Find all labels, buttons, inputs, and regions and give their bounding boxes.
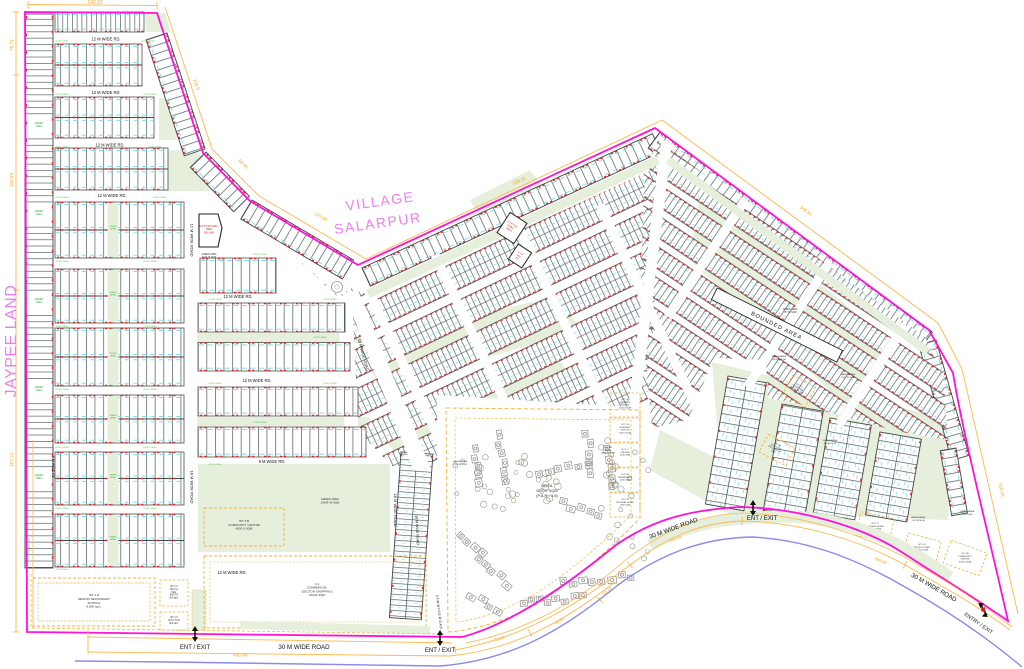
svg-text:30 M WIDE ROAD: 30 M WIDE ROAD (278, 644, 330, 651)
svg-text:9 M WIDE RD.: 9 M WIDE RD. (259, 459, 286, 464)
svg-text:203.89: 203.89 (9, 173, 14, 187)
svg-text:GREEN AREA1411.38 SQM: GREEN AREA1411.38 SQM (911, 516, 926, 522)
svg-text:+13.27+13.00+: +13.27+13.00+ (143, 326, 158, 328)
svg-text:+13.27+13.00+: +13.27+13.00+ (143, 447, 158, 449)
svg-text:445.88: 445.88 (233, 653, 248, 659)
svg-text:+13.27+13.00+: +13.27+13.00+ (253, 254, 268, 256)
svg-text:+13.27+13.00+: +13.27+13.00+ (55, 147, 70, 149)
svg-text:+13.27+13.00+: +13.27+13.00+ (55, 94, 70, 96)
svg-text:+13.27+13.00+: +13.27+13.00+ (313, 337, 328, 339)
svg-text:12 M WIDE RD.: 12 M WIDE RD. (223, 294, 252, 299)
svg-text:157.12: 157.12 (26, 538, 31, 552)
svg-text:+13.27+13.00+: +13.27+13.00+ (55, 569, 70, 571)
svg-text:12 M WIDE RD.: 12 M WIDE RD. (217, 570, 246, 575)
svg-text:GREEN AREA757.03 SQM: GREEN AREA757.03 SQM (783, 308, 798, 314)
svg-text:GREENAREA: GREENAREA (35, 122, 44, 128)
svg-text:JAYPEE LAND: JAYPEE LAND (3, 285, 20, 398)
svg-text:+13.27+13.00+: +13.27+13.00+ (143, 389, 158, 391)
svg-text:+13.27+13.00+: +13.27+13.00+ (208, 299, 223, 301)
svg-text:+13.27+13.00+: +13.27+13.00+ (55, 41, 70, 43)
svg-text:+13.27+13.00+: +13.27+13.00+ (208, 464, 223, 466)
svg-text:GREEN AREA1957.77 SQM: GREEN AREA1957.77 SQM (841, 373, 856, 379)
svg-text:12 M WIDE RD.: 12 M WIDE RD. (95, 143, 124, 148)
svg-text:75.71: 75.71 (9, 39, 14, 51)
svg-text:+13.27+13.00+: +13.27+13.00+ (143, 261, 158, 263)
svg-text:+13.27+13.00+: +13.27+13.00+ (55, 326, 70, 328)
svg-text:18 M WIDE ROAD: 18 M WIDE ROAD (393, 493, 398, 526)
svg-text:ENT / EXIT: ENT / EXIT (180, 645, 211, 651)
svg-text:+13.27+13.00+: +13.27+13.00+ (141, 41, 156, 43)
svg-text:142.82: 142.82 (87, 0, 103, 6)
svg-text:9 M WIDE RD: 9 M WIDE RD (51, 456, 55, 479)
svg-text:+13.27+13.00+: +13.27+13.00+ (143, 94, 158, 96)
svg-text:12 M WIDE RD.: 12 M WIDE RD. (242, 378, 271, 383)
svg-text:GREENAREA: GREENAREA (35, 386, 44, 392)
svg-text:GREENAREA: GREENAREA (35, 474, 44, 480)
svg-text:GREEN AREA636.40 SQM: GREEN AREA636.40 SQM (823, 439, 838, 445)
svg-text:ENT / EXIT: ENT / EXIT (747, 516, 778, 522)
svg-text:157.12: 157.12 (9, 453, 14, 467)
svg-text:ENT / EXIT: ENT / EXIT (425, 648, 456, 654)
svg-text:18 M WIDE ROAD: 18 M WIDE ROAD (190, 470, 195, 503)
svg-text:+13.27+13.00+: +13.27+13.00+ (153, 197, 168, 199)
svg-text:+13.27+13.00+: +13.27+13.00+ (55, 261, 70, 263)
svg-text:+13.27+13.00+: +13.27+13.00+ (55, 389, 70, 391)
svg-text:12 M WIDE RD.: 12 M WIDE RD. (97, 193, 126, 198)
svg-text:12 M WIDE RD.: 12 M WIDE RD. (91, 37, 120, 42)
svg-text:GREENAREA: GREENAREA (35, 298, 44, 304)
svg-text:+13.27+13.00+: +13.27+13.00+ (323, 299, 338, 301)
svg-text:12 M WIDE RD.: 12 M WIDE RD. (91, 90, 120, 95)
svg-text:12 M WIDE ROAD: 12 M WIDE ROAD (190, 223, 195, 256)
svg-text:+13.27+13.00+: +13.27+13.00+ (323, 383, 338, 385)
svg-text:+13.27+13.00+: +13.27+13.00+ (55, 508, 70, 510)
svg-text:+13.27+13.00+: +13.27+13.00+ (253, 422, 268, 424)
svg-text:+13.27+13.00+: +13.27+13.00+ (148, 147, 163, 149)
svg-text:+13.27+13.00+: +13.27+13.00+ (55, 447, 70, 449)
svg-text:+13.27+13.00+: +13.27+13.00+ (143, 508, 158, 510)
svg-text:+13.27+13.00+: +13.27+13.00+ (55, 197, 70, 199)
svg-text:GREEN AREA7324.92 SQM: GREEN AREA7324.92 SQM (772, 355, 787, 361)
svg-text:GREENAREA: GREENAREA (35, 210, 44, 216)
svg-text:GREEN AREA13643.40 SQM: GREEN AREA13643.40 SQM (321, 497, 340, 504)
svg-text:GREEN AREA1736.18 SQM: GREEN AREA1736.18 SQM (453, 460, 468, 466)
svg-text:+13.27+13.00+: +13.27+13.00+ (208, 383, 223, 385)
